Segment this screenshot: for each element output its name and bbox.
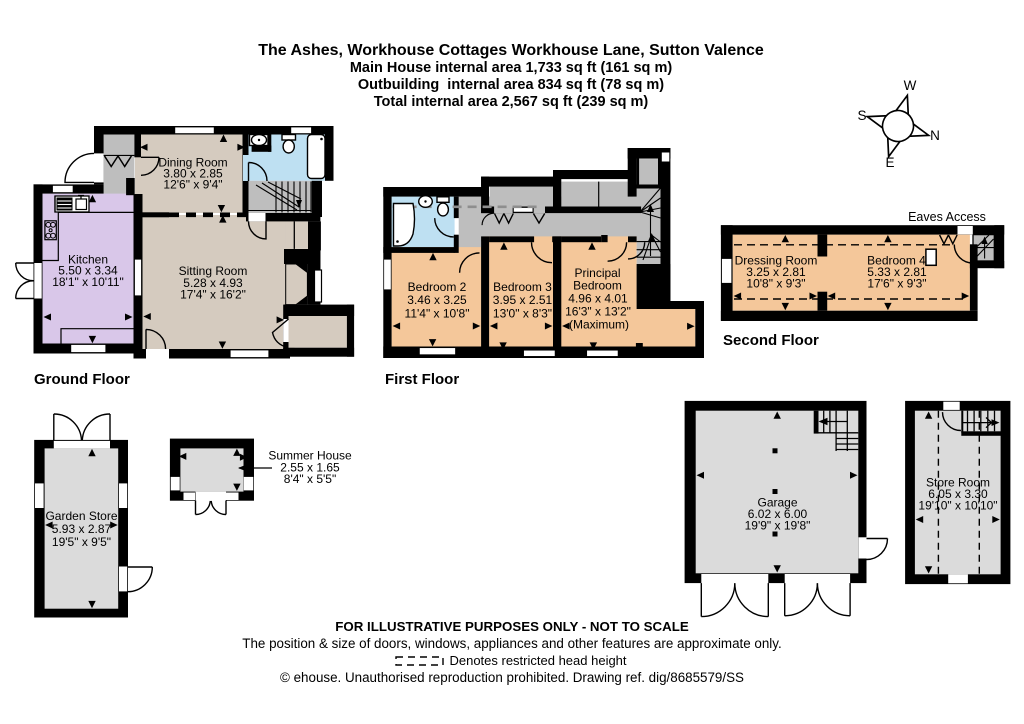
svg-text:FOR ILLUSTRATIVE PURPOSES ONLY: FOR ILLUSTRATIVE PURPOSES ONLY - NOT TO …	[335, 619, 689, 634]
svg-text:19'9" x 19'8": 19'9" x 19'8"	[745, 519, 811, 533]
svg-text:© ehouse. Unauthorised reprodu: © ehouse. Unauthorised reproduction proh…	[280, 670, 744, 685]
svg-text:W: W	[904, 78, 917, 93]
svg-text:Bedroom: Bedroom	[573, 279, 622, 293]
svg-text:Denotes restricted head height: Denotes restricted head height	[449, 653, 626, 668]
svg-text:17'4" x 16'2": 17'4" x 16'2"	[180, 288, 246, 302]
svg-text:Garden Store: Garden Store	[45, 509, 117, 523]
svg-text:Ground Floor: Ground Floor	[34, 371, 130, 388]
svg-text:19'10" x 10'10": 19'10" x 10'10"	[918, 499, 997, 513]
svg-text:Second Floor: Second Floor	[723, 332, 819, 349]
svg-text:Outbuilding internal area 834: Outbuilding internal area 834 sq ft (78 …	[358, 77, 664, 93]
svg-text:3.95 x 2.51: 3.95 x 2.51	[493, 293, 553, 307]
svg-text:(Maximum): (Maximum)	[569, 318, 629, 332]
svg-text:13'0" x 8'3": 13'0" x 8'3"	[493, 307, 552, 321]
svg-text:Bedroom 2: Bedroom 2	[408, 280, 467, 294]
svg-text:4.96 x 4.01: 4.96 x 4.01	[568, 292, 628, 306]
svg-text:Total internal area 2,567 sq f: Total internal area 2,567 sq ft (239 sq …	[374, 94, 649, 110]
svg-text:S: S	[857, 108, 866, 123]
svg-text:Main House internal area 1,733: Main House internal area 1,733 sq ft (16…	[350, 60, 673, 76]
svg-text:11'4" x 10'8": 11'4" x 10'8"	[405, 307, 470, 321]
svg-text:8'4" x 5'5": 8'4" x 5'5"	[284, 472, 336, 486]
svg-text:16'3" x 13'2": 16'3" x 13'2"	[565, 305, 631, 319]
svg-text:Bedroom 3: Bedroom 3	[493, 280, 552, 294]
svg-text:E: E	[885, 155, 894, 170]
svg-text:3.46 x 3.25: 3.46 x 3.25	[407, 293, 467, 307]
svg-text:10'8" x 9'3": 10'8" x 9'3"	[746, 277, 805, 291]
svg-text:Eaves Access: Eaves Access	[908, 210, 986, 224]
svg-text:N: N	[930, 128, 940, 143]
svg-text:19'5" x 9'5": 19'5" x 9'5"	[52, 535, 111, 549]
svg-text:5.93 x 2.87: 5.93 x 2.87	[52, 522, 112, 536]
svg-text:First Floor: First Floor	[385, 371, 459, 388]
svg-text:12'6" x 9'4": 12'6" x 9'4"	[163, 178, 222, 192]
svg-text:18'1" x 10'11": 18'1" x 10'11"	[52, 275, 124, 289]
svg-text:17'6" x 9'3": 17'6" x 9'3"	[867, 277, 926, 291]
svg-text:The position & size of doors,: The position & size of doors, windows, a…	[242, 636, 781, 651]
svg-text:The Ashes, Workhouse Cottages: The Ashes, Workhouse Cottages Workhouse …	[258, 42, 764, 59]
